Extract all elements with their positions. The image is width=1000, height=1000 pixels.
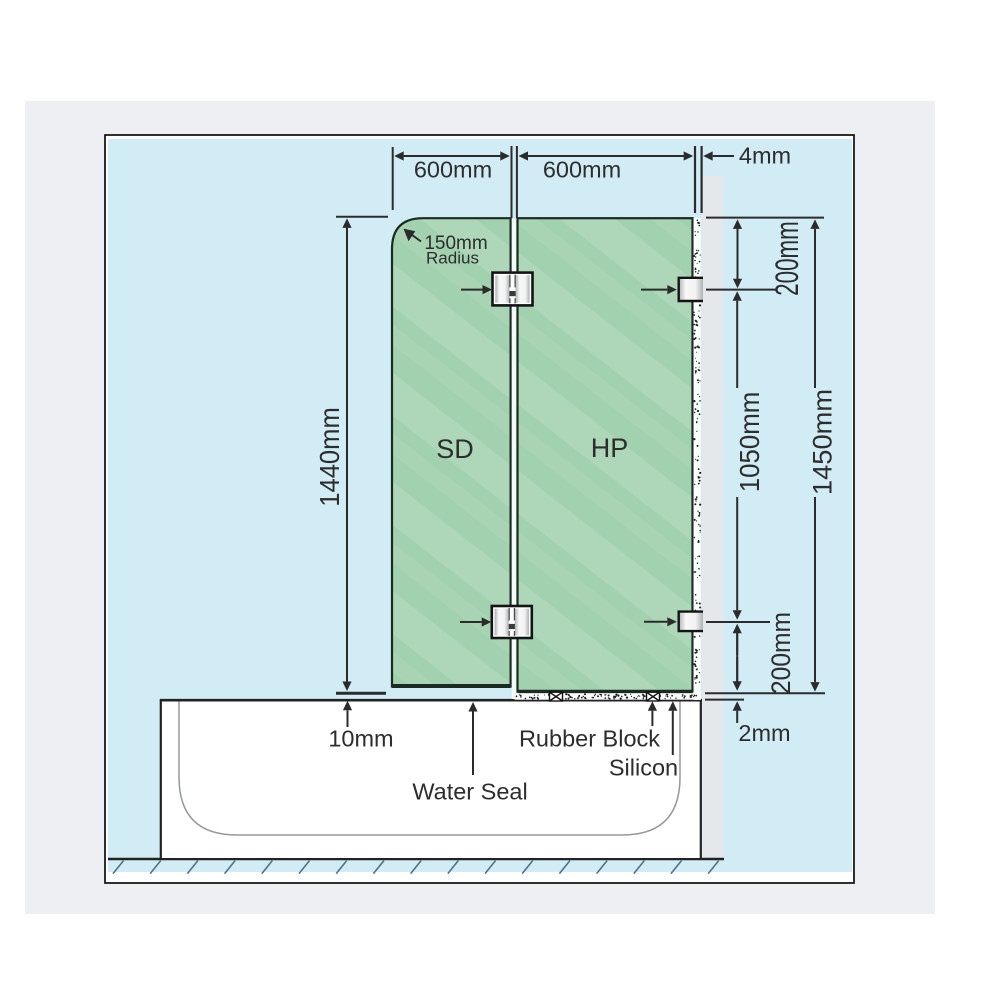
svg-text:600mm: 600mm [543,157,621,183]
svg-text:SD: SD [436,434,474,464]
svg-text:1050mm: 1050mm [734,392,765,493]
svg-text:Radius: Radius [426,249,479,268]
svg-text:Water Seal: Water Seal [412,779,527,805]
svg-text:HP: HP [591,433,629,463]
svg-text:4mm: 4mm [739,143,791,169]
svg-text:600mm: 600mm [414,157,492,183]
svg-text:200mm: 200mm [767,612,796,694]
svg-text:1440mm: 1440mm [314,407,345,506]
svg-text:10mm: 10mm [328,726,393,752]
svg-text:Silicon: Silicon [609,755,678,781]
svg-text:Rubber Block: Rubber Block [519,726,660,752]
svg-text:1450mm: 1450mm [808,389,838,495]
svg-text:200mm: 200mm [769,221,805,296]
svg-text:2mm: 2mm [738,720,790,746]
